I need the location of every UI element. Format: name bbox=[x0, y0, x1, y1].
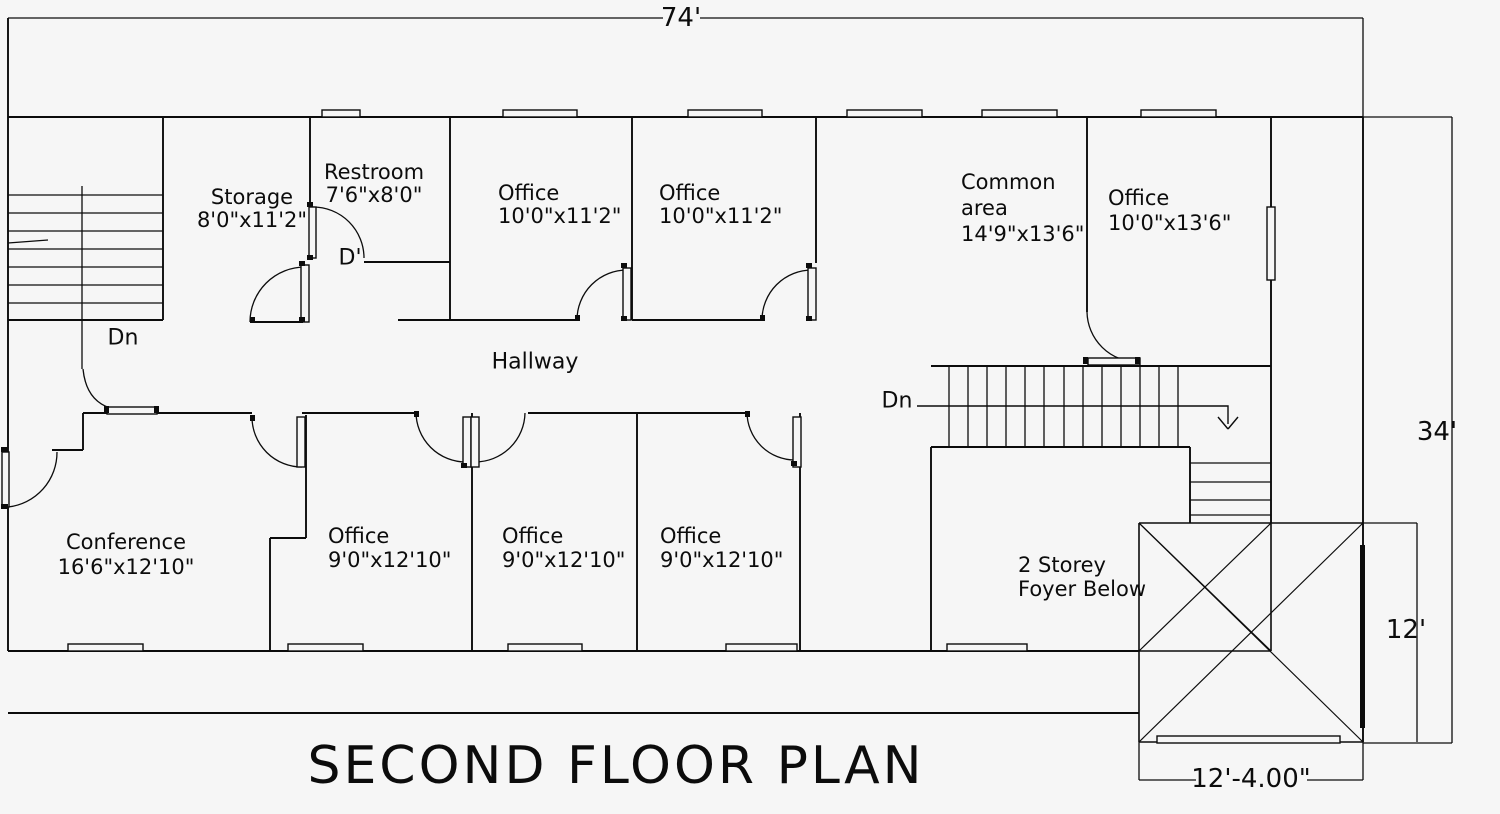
office-top-2-door-arc bbox=[762, 270, 812, 320]
room-label-office-bottom-3: Office9'0"x12'10" bbox=[660, 524, 783, 572]
door-mark-label: D' bbox=[339, 246, 362, 271]
down-label-right: Dn bbox=[882, 389, 913, 414]
office-bottom-1-door-arc bbox=[416, 412, 466, 462]
room-label-office-top-3: Office10'0"x13'6" bbox=[1108, 186, 1231, 236]
dimension-foyer-height-label: 12' bbox=[1386, 615, 1426, 645]
room-label-office-bottom-1: Office9'0"x12'10" bbox=[328, 524, 451, 572]
dimension-lines bbox=[8, 18, 1452, 780]
windows-bottom-wall bbox=[68, 644, 1027, 651]
thick-wall-bar bbox=[1360, 545, 1365, 728]
window-right-wall bbox=[1267, 207, 1275, 280]
dimension-width-label: 74' bbox=[661, 3, 701, 33]
office-top-1-door-arc bbox=[577, 270, 627, 320]
room-label-office-top-1: Office10'0"x11'2" bbox=[498, 182, 621, 228]
foyer-window bbox=[1157, 736, 1340, 743]
dimension-height-label: 34' bbox=[1417, 417, 1457, 447]
dimension-foyer-width-label: 12'-4.00" bbox=[1191, 764, 1310, 794]
down-label-left: Dn bbox=[108, 326, 139, 351]
staircase-middle bbox=[949, 366, 1271, 515]
windows-top-wall bbox=[322, 110, 1216, 117]
down-arrow bbox=[917, 406, 1238, 429]
floor-plan: 74' 34' 12' 12'-4.00" Storage8'0"x11'2" … bbox=[0, 0, 1500, 814]
room-label-common-area: Commonarea14'9"x13'6" bbox=[961, 169, 1084, 247]
page-title: SECOND FLOOR PLAN bbox=[307, 736, 924, 796]
room-label-restroom: Restroom7'6"x8'0" bbox=[324, 161, 424, 207]
room-label-conference: Conference16'6"x12'10" bbox=[58, 530, 195, 580]
conference-left-door-arc bbox=[8, 452, 57, 507]
room-label-office-top-2: Office10'0"x11'2" bbox=[659, 182, 782, 228]
conference-top-door-arc bbox=[252, 417, 302, 467]
walls bbox=[8, 18, 1363, 742]
office-bottom-3-door-arc bbox=[747, 412, 795, 460]
room-label-foyer-below: 2 StoreyFoyer Below bbox=[1018, 553, 1146, 601]
foyer-shaft bbox=[1139, 523, 1365, 743]
floor-plan-drawing bbox=[0, 0, 1500, 814]
hallway-label: Hallway bbox=[492, 350, 579, 375]
room-label-office-bottom-2: Office9'0"x12'10" bbox=[502, 524, 625, 572]
stair-exit-door-arc bbox=[83, 369, 110, 408]
office-bottom-2-door-arc bbox=[475, 413, 525, 462]
staircase-upper-left bbox=[8, 186, 163, 369]
room-label-storage: Storage8'0"x11'2" bbox=[197, 186, 307, 232]
x-bracing bbox=[1139, 523, 1363, 742]
storage-door-arc bbox=[250, 267, 305, 322]
stair-door-arc bbox=[1087, 312, 1138, 362]
